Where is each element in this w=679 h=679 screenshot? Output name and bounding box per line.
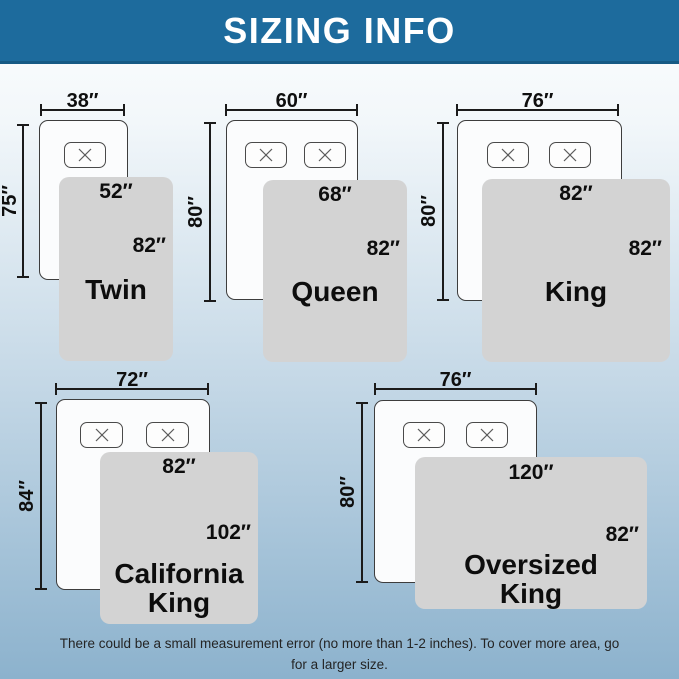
bed-width-label: 76″ [456,91,619,111]
bed-length-label: 75″ [0,185,20,217]
pillow-x-icon [73,147,97,163]
page-title: SIZING INFO [223,10,456,52]
blanket-overlay: 52″ 82″ Twin [59,177,173,361]
pillow-icon [245,142,287,168]
header-banner: SIZING INFO [0,0,679,64]
width-dimension-line [456,109,619,111]
pillow-x-icon [412,427,436,443]
bed-width-label: 76″ [374,370,537,390]
blanket-length-label: 82″ [606,524,639,545]
blanket-length-label: 82″ [629,238,662,259]
blanket-length-label: 82″ [133,235,166,256]
size-name-label: Twin [59,275,173,304]
bed-length-label: 80″ [419,195,439,227]
pillow-x-icon [254,147,278,163]
pillow-x-icon [475,427,499,443]
length-dimension-line [361,402,363,583]
pillow-icon [146,422,189,448]
sizing-infographic: SIZING INFO 38″ 75″ 52″ 82″ Twin 60″ 80″ [0,0,679,679]
size-name-label: Oversized King [446,550,616,609]
pillow-icon [549,142,591,168]
pillow-x-icon [558,147,582,163]
pillow-x-icon [313,147,337,163]
blanket-width-label: 68″ [263,184,407,205]
blanket-width-label: 120″ [415,462,647,483]
bed-width-label: 60″ [225,91,358,111]
length-dimension-line [442,122,444,301]
bed-width-label: 72″ [55,370,209,390]
pillow-icon [487,142,529,168]
bed-length-label: 80″ [186,196,206,228]
size-name-label: California King [100,559,258,618]
length-dimension-line [22,124,24,278]
bed-width-label: 38″ [40,91,125,111]
pillow-icon [466,422,508,448]
measurement-note: There could be a small measurement error… [0,634,679,676]
blanket-width-label: 82″ [482,183,670,204]
pillow-x-icon [156,427,180,443]
pillow-icon [304,142,346,168]
blanket-overlay: 82″ 102″ California King [100,452,258,624]
size-name-label: Queen [263,277,407,306]
blanket-overlay: 82″ 82″ King [482,179,670,362]
blanket-overlay: 120″ 82″ Oversized King [415,457,647,609]
blanket-width-label: 52″ [59,181,173,202]
pillow-icon [403,422,445,448]
pillow-icon [64,142,106,168]
width-dimension-line [40,109,125,111]
measurement-note-line2: for a larger size. [0,655,679,676]
pillow-x-icon [496,147,520,163]
blanket-width-label: 82″ [100,456,258,477]
width-dimension-line [55,388,209,390]
width-dimension-line [374,388,537,390]
pillow-x-icon [90,427,114,443]
length-dimension-line [40,402,42,590]
width-dimension-line [225,109,358,111]
blanket-overlay: 68″ 82″ Queen [263,180,407,362]
pillow-icon [80,422,123,448]
blanket-length-label: 82″ [367,238,400,259]
length-dimension-line [209,122,211,302]
bed-length-label: 84″ [17,480,37,512]
measurement-note-line1: There could be a small measurement error… [0,634,679,655]
blanket-length-label: 102″ [206,522,251,543]
bed-length-label: 80″ [338,476,358,508]
size-name-label: King [482,277,670,306]
